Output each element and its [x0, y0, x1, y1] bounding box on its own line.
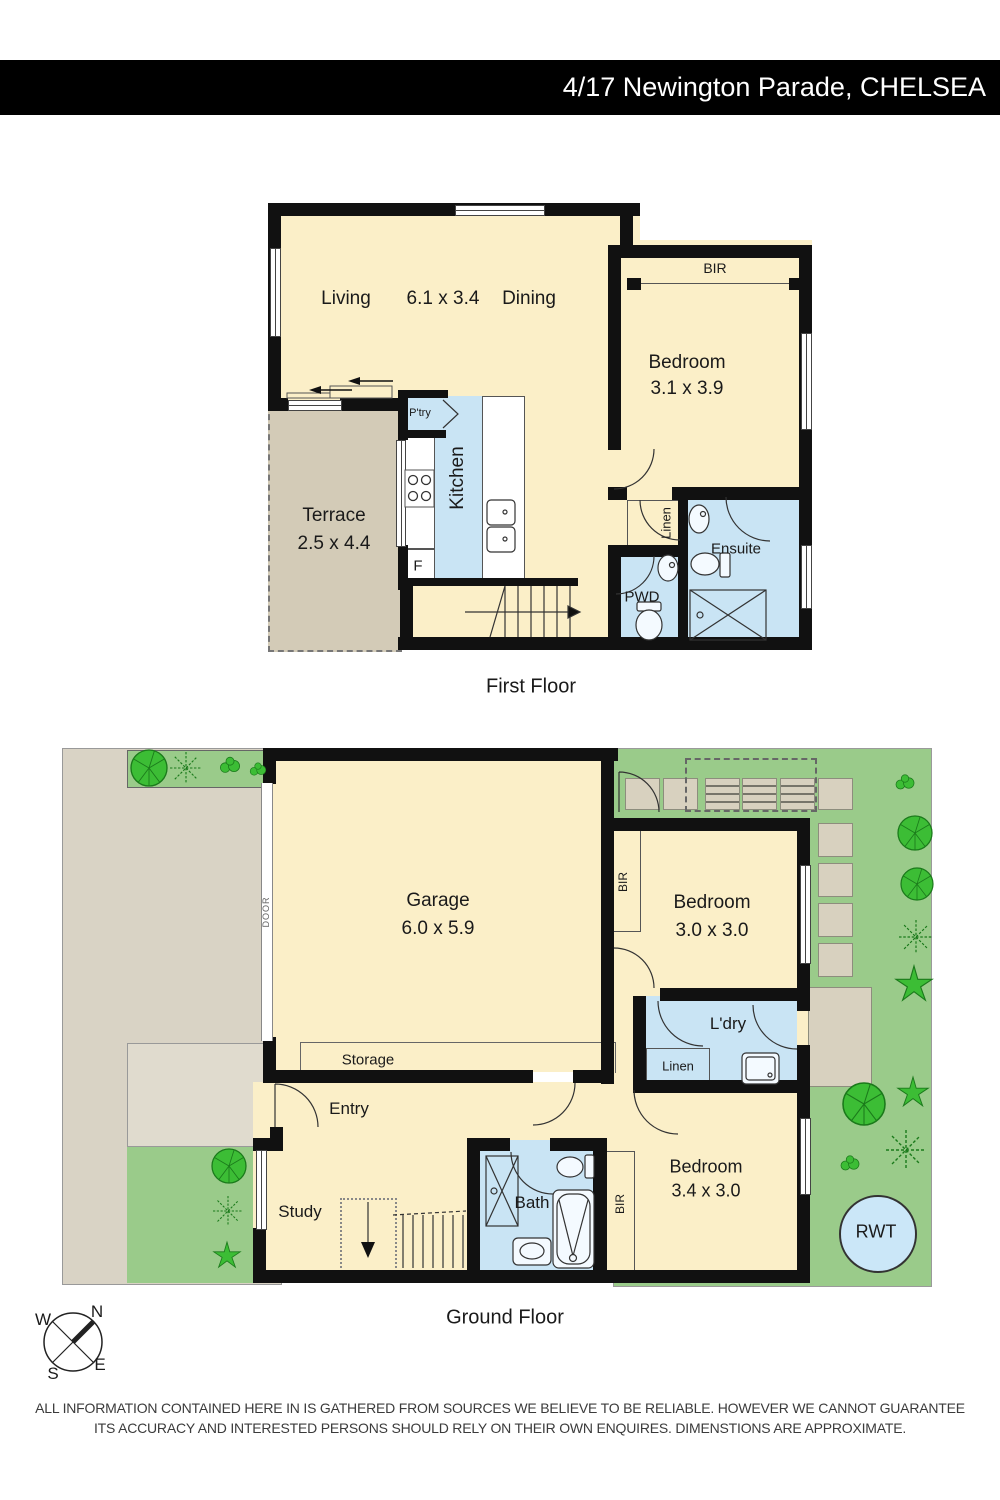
stairs-upper-outline — [340, 1198, 397, 1272]
bedroom1-dims-label: 3.1 x 3.9 — [651, 378, 724, 400]
patio — [808, 987, 872, 1087]
clothesline-dashed — [685, 758, 817, 812]
compass-s-label: S — [47, 1364, 58, 1384]
bir-rear-label: BIR — [616, 872, 630, 892]
laundry-label: L'dry — [710, 1014, 746, 1034]
ground-floor-caption: Ground Floor — [446, 1307, 564, 1330]
wall — [601, 818, 810, 831]
wall — [573, 1070, 614, 1083]
ensuite-floor — [688, 493, 799, 637]
garden-bottom-left — [127, 1143, 255, 1283]
linen-label-ff: Linen — [659, 507, 674, 539]
window — [800, 1118, 811, 1195]
window — [801, 333, 812, 430]
wall — [467, 1138, 480, 1270]
wall — [608, 550, 621, 640]
bedroom-front-label: Bedroom — [669, 1157, 742, 1178]
wall — [797, 996, 810, 1011]
wall — [601, 748, 614, 998]
bir-stub — [789, 278, 802, 290]
terrace-floor — [268, 404, 402, 652]
page-title: 4/17 Newington Parade, CHELSEA — [563, 60, 986, 115]
window — [256, 1150, 267, 1230]
bir-front-line — [641, 283, 789, 284]
study-label: Study — [278, 1202, 321, 1222]
bedroom-rear-dims-label: 3.0 x 3.0 — [676, 920, 749, 942]
wall — [621, 245, 812, 258]
wall — [678, 493, 688, 643]
stepping-stone — [818, 823, 853, 857]
wall — [672, 487, 812, 500]
wall — [593, 1138, 607, 1270]
bedroom1-label: Bedroom — [648, 352, 725, 374]
wall — [268, 203, 640, 216]
kitchen-label: Kitchen — [447, 446, 469, 509]
terrace-dims-label: 2.5 x 4.4 — [298, 533, 371, 555]
compass-w-label: W — [35, 1310, 51, 1330]
stepping-stone — [818, 778, 853, 810]
wall — [633, 1080, 810, 1093]
compass-e-label: E — [94, 1355, 105, 1375]
bath-label: Bath — [515, 1193, 550, 1213]
wall — [263, 748, 276, 784]
stepping-stone — [625, 778, 660, 810]
pantry-label: P'try — [409, 407, 431, 419]
window — [270, 248, 281, 337]
living-label: Living — [321, 288, 371, 310]
window — [455, 205, 545, 216]
garage-dims-label: 6.0 x 5.9 — [402, 918, 475, 940]
title-bar: 4/17 Newington Parade, CHELSEA — [0, 60, 1000, 115]
window — [800, 865, 811, 964]
disclaimer-line2: ITS ACCURACY AND INTERESTED PERSONS SHOU… — [0, 1420, 1000, 1436]
entry-label: Entry — [329, 1099, 369, 1119]
wall — [253, 1270, 810, 1283]
dining-label: Dining — [502, 288, 556, 310]
living-dims-label: 6.1 x 3.4 — [407, 288, 480, 310]
bir-label-ff: BIR — [703, 260, 726, 276]
wall — [633, 996, 646, 1086]
wall — [398, 637, 812, 650]
disclaimer-line1: ALL INFORMATION CONTAINED HERE IN IS GAT… — [0, 1400, 1000, 1416]
linen-label-gf: Linen — [662, 1059, 694, 1074]
window — [801, 545, 812, 609]
wall — [550, 1138, 607, 1151]
kitchen-counter — [403, 437, 435, 549]
stepping-stone — [818, 903, 853, 937]
porch — [127, 1043, 272, 1147]
wall — [608, 487, 627, 500]
window — [396, 440, 406, 547]
kitchen-island — [482, 396, 525, 580]
compass-n-label: N — [91, 1302, 103, 1322]
stepping-stone — [818, 943, 853, 977]
floorplan-page: 4/17 Newington Parade, CHELSEA — [0, 0, 1000, 1500]
bedroom-front-dims-label: 3.4 x 3.0 — [671, 1181, 740, 1202]
pwd-label: PWD — [625, 589, 660, 606]
first-floor-caption: First Floor — [486, 676, 576, 699]
wall — [608, 245, 621, 450]
fridge-label: F — [413, 558, 422, 575]
wall — [263, 748, 618, 761]
terrace-label: Terrace — [302, 505, 365, 527]
rwt-label: RWT — [856, 1222, 897, 1243]
bir-stub — [627, 278, 641, 290]
stair-header-wall — [413, 578, 578, 586]
ensuite-label: Ensuite — [711, 541, 761, 558]
garage-floor — [263, 760, 614, 1072]
window — [288, 400, 342, 411]
wall — [660, 988, 810, 1001]
wall — [398, 393, 408, 440]
wall — [467, 1138, 510, 1151]
garage-label: Garage — [406, 890, 469, 912]
storage-label: Storage — [342, 1052, 395, 1069]
wall — [263, 1070, 533, 1083]
bedroom-rear-label: Bedroom — [673, 892, 750, 914]
wall — [340, 398, 403, 411]
bir-front-label: BIR — [613, 1194, 627, 1214]
wall — [263, 1037, 276, 1072]
stepping-stone — [818, 863, 853, 897]
garage-door-label: DOOR — [261, 897, 271, 928]
wall — [268, 398, 288, 411]
